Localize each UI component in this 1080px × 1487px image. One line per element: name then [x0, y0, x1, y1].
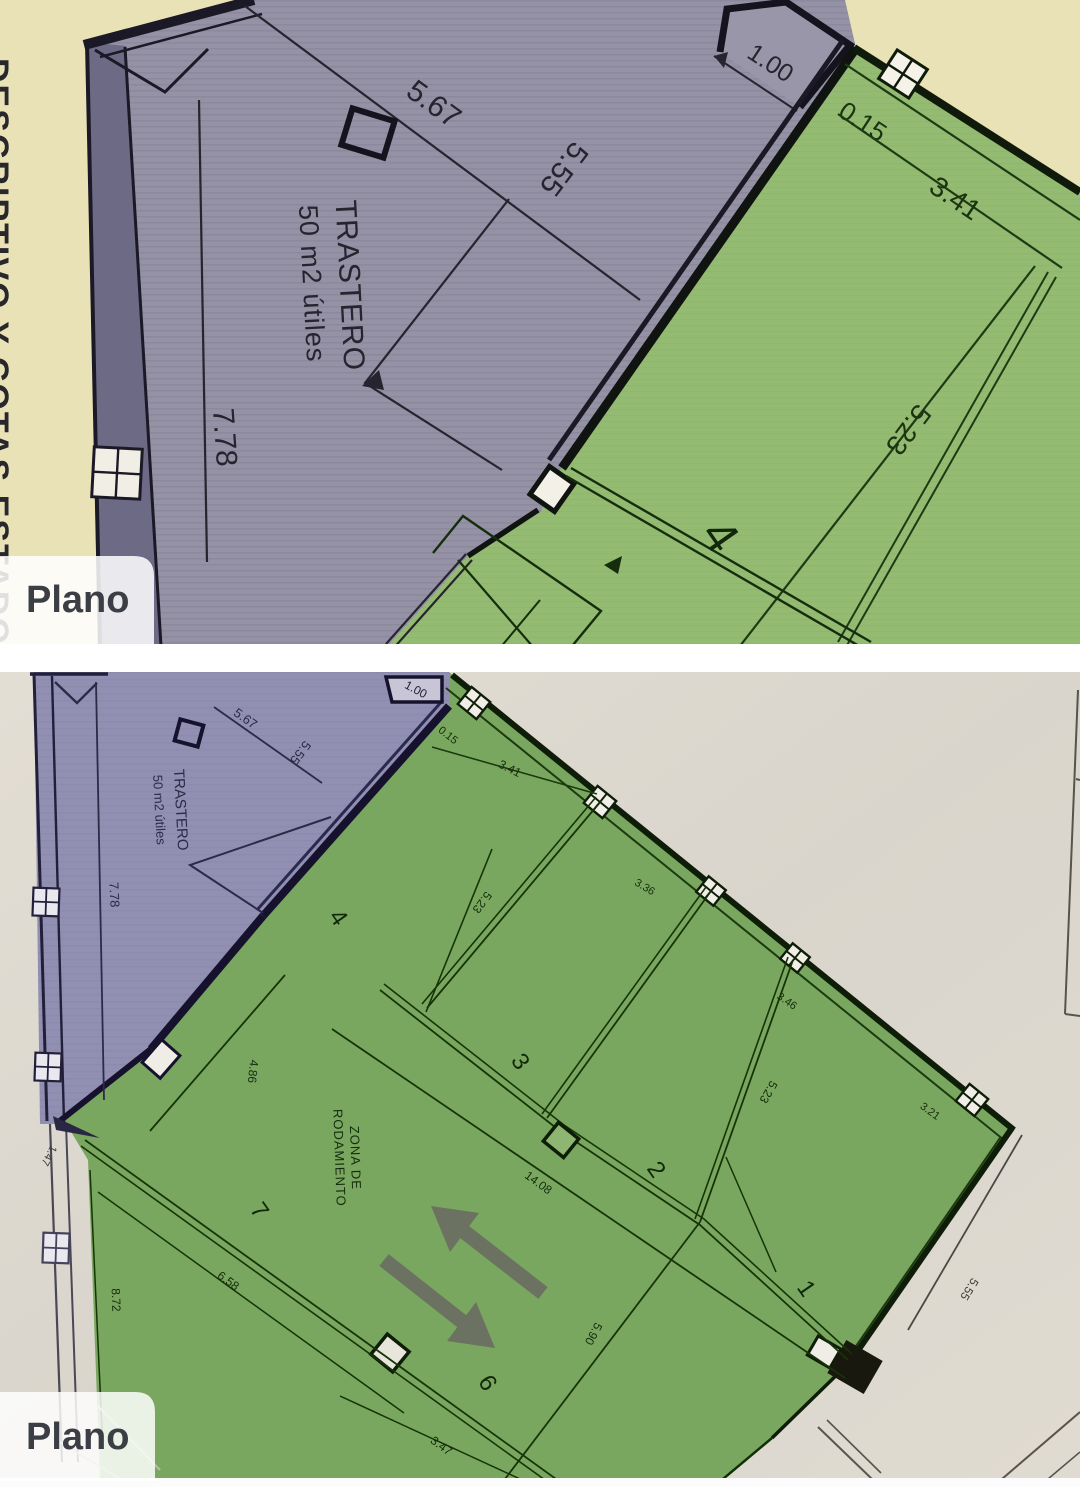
svg-text:4.86: 4.86: [245, 1059, 261, 1084]
svg-text:8.72: 8.72: [109, 1288, 124, 1312]
svg-text:ZONA DE: ZONA DE: [347, 1126, 364, 1191]
svg-text:Plano: Plano: [26, 579, 129, 621]
svg-text:7.78: 7.78: [206, 407, 243, 468]
svg-text:Plano: Plano: [26, 1416, 129, 1458]
svg-text:7.78: 7.78: [106, 882, 122, 908]
